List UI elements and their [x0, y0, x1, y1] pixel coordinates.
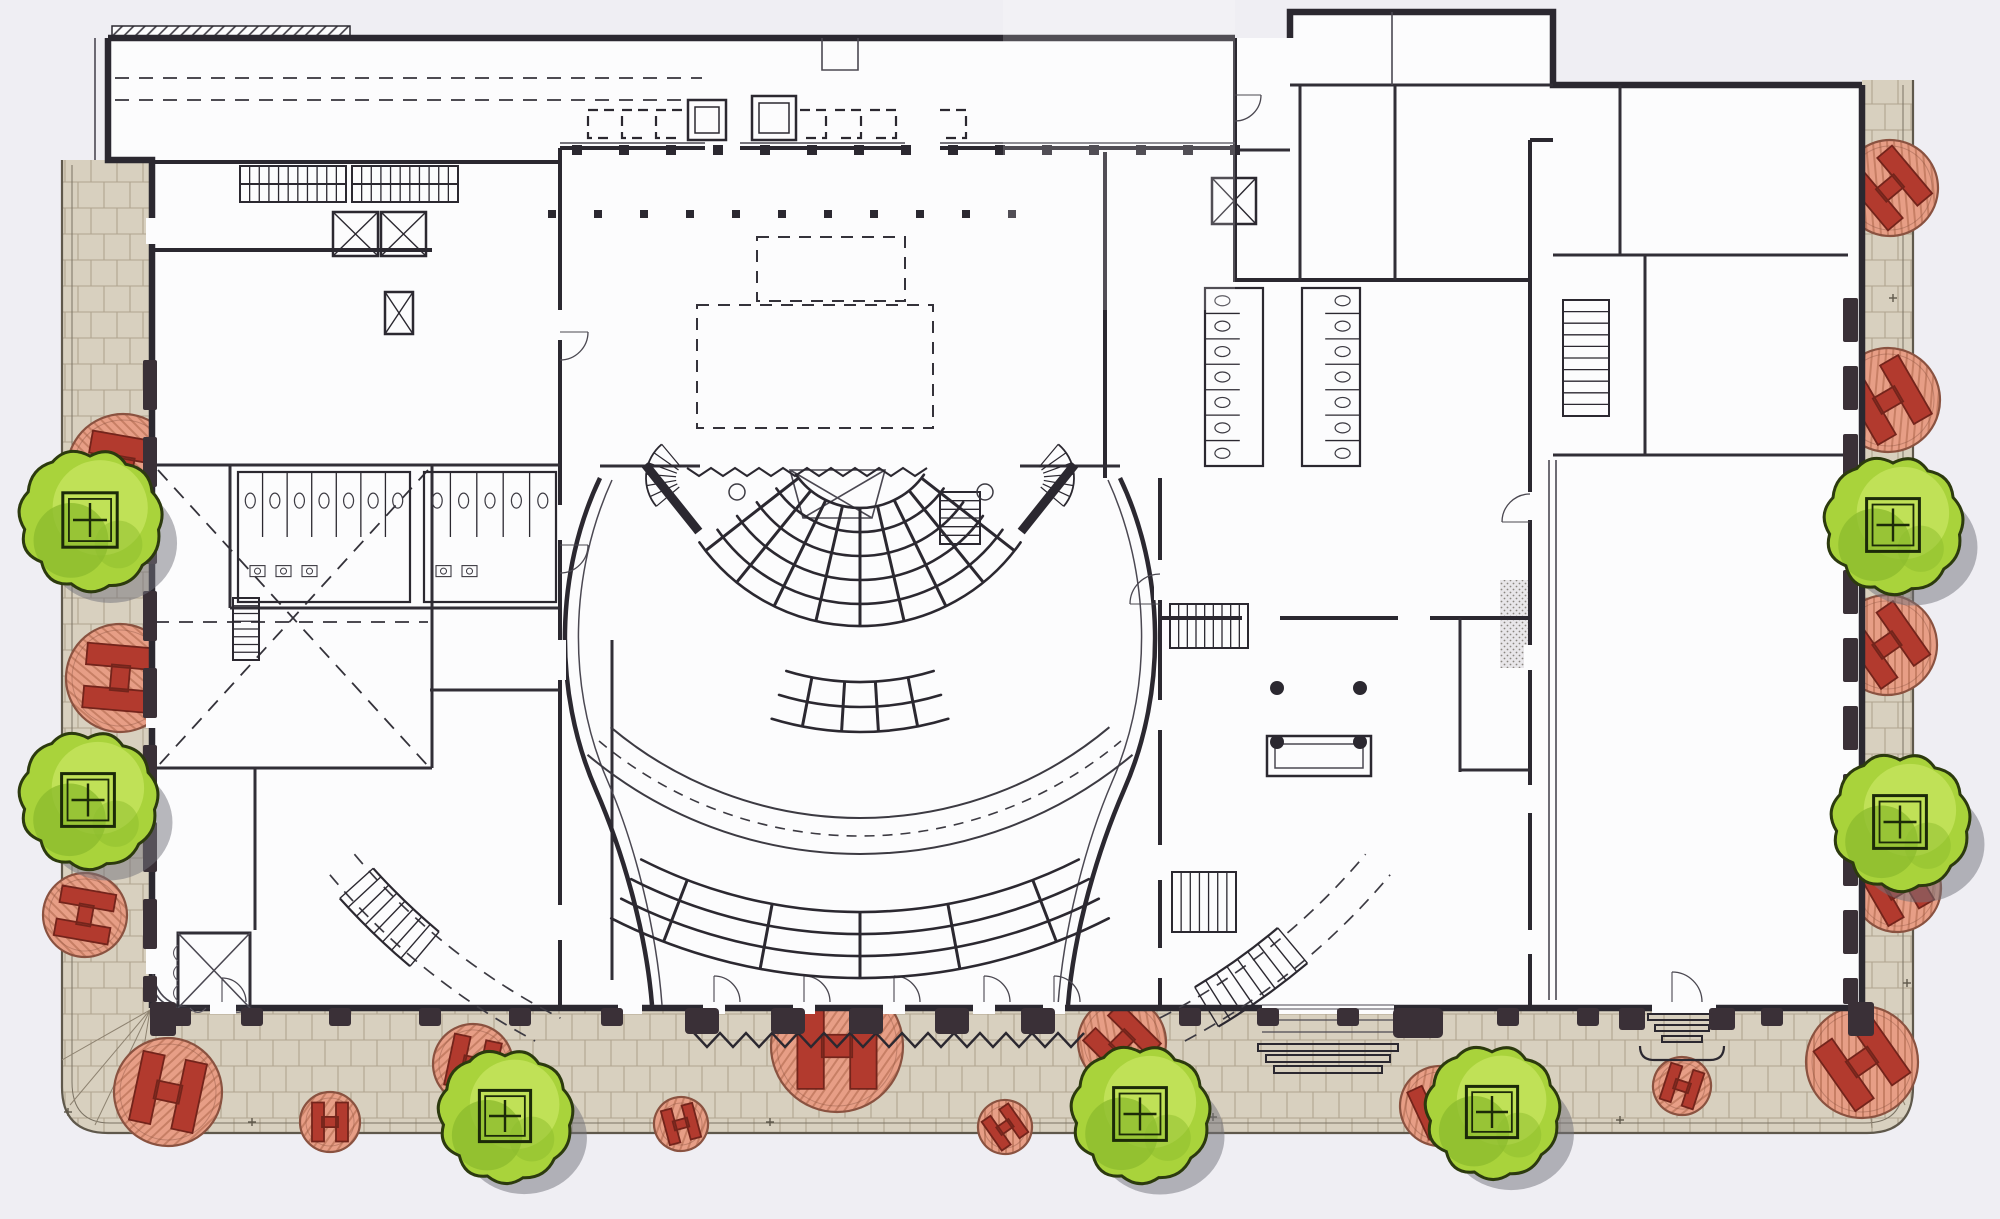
wall-pier [143, 668, 157, 718]
column [572, 145, 582, 155]
pier [419, 1008, 441, 1026]
column [778, 210, 786, 218]
pier [849, 1008, 883, 1034]
pier [509, 1008, 531, 1026]
pier [1619, 1008, 1645, 1030]
pier [935, 1008, 969, 1034]
pier [329, 1008, 351, 1026]
scan-artifact [1003, 0, 1235, 310]
column [732, 210, 740, 218]
corner-pier [1848, 1002, 1874, 1036]
pier [1497, 1008, 1519, 1026]
column [901, 145, 911, 155]
pier [1337, 1008, 1359, 1026]
column [854, 145, 864, 155]
column [807, 145, 817, 155]
wall-pier [143, 591, 157, 641]
pier [601, 1008, 623, 1026]
column [713, 145, 723, 155]
pier [771, 1008, 805, 1034]
column [548, 210, 556, 218]
column [1353, 681, 1367, 695]
wall-pier [143, 360, 157, 410]
wall-pier [143, 976, 157, 1002]
floor-plan-canvas [0, 0, 2000, 1219]
column [760, 145, 770, 155]
column [824, 210, 832, 218]
column [1270, 735, 1284, 749]
pier [1179, 1008, 1201, 1026]
column [686, 210, 694, 218]
pier [1709, 1008, 1735, 1030]
wall-pier [143, 899, 157, 949]
column [870, 210, 878, 218]
column [962, 210, 970, 218]
column [1353, 735, 1367, 749]
wall-pier [1843, 638, 1858, 682]
wall-pier [1843, 366, 1858, 410]
column [916, 210, 924, 218]
column [619, 145, 629, 155]
portico-pier [1393, 1008, 1443, 1038]
pier [1257, 1008, 1279, 1026]
column [640, 210, 648, 218]
pier [685, 1008, 719, 1034]
column [594, 210, 602, 218]
wall-pier [1843, 910, 1858, 954]
building [95, 12, 1862, 1013]
column [1270, 681, 1284, 695]
column [948, 145, 958, 155]
h-medallion [300, 1092, 360, 1152]
wall-pier [1843, 978, 1858, 1004]
floor-plan-page [0, 0, 2000, 1219]
pier [1761, 1008, 1783, 1026]
pier [241, 1008, 263, 1026]
pier [1577, 1008, 1599, 1026]
column [666, 145, 676, 155]
wall-pier [1843, 706, 1858, 750]
wall-pier [1843, 298, 1858, 342]
pier [1021, 1008, 1055, 1034]
corner-pier [150, 1002, 176, 1036]
